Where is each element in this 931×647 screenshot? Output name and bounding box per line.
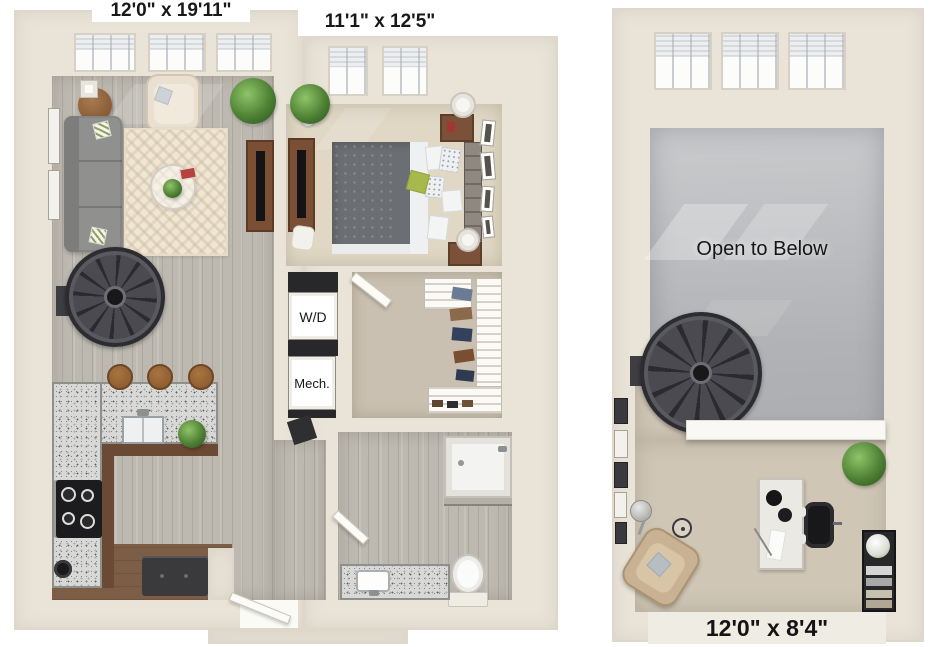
loft-window [654,32,712,90]
kitchen-plant [178,420,206,448]
loft-dimensions-label: 12'0" x 8'4" [648,612,886,644]
spiral-staircase-loft [640,312,762,434]
shoe [432,400,443,407]
closet-wire-shelf [476,278,502,392]
bedside-lamp [450,92,476,118]
wall-art-frame [480,119,497,146]
trash-bin [54,560,72,578]
wall-art-frame [614,430,628,458]
floor-lamp [630,500,652,522]
sofa [64,116,122,252]
wall-art-frame [480,151,496,180]
living-window [216,33,272,72]
shoe [447,401,458,408]
toilet [448,554,488,610]
desk-chair [290,225,315,252]
living-dining-dimensions-label: 12'0" x 19'11" [92,0,250,22]
clothing-item [449,307,472,321]
armchair [146,74,200,132]
bar-stool [147,364,173,390]
vanity-faucet [369,590,379,596]
wall-art-frame [614,398,628,424]
flower-vase [866,534,890,558]
wall-art-frame [48,108,60,164]
loft-window [788,32,846,90]
stove [54,480,102,538]
vanity-sink [356,570,390,592]
appliance-dark-band [288,272,338,292]
bedroom-window [328,46,368,96]
hallway-floor [274,440,326,600]
wall-art-frame [614,462,628,488]
bedroom-plant [290,84,330,124]
shower [444,436,512,498]
shower-glass [444,498,512,506]
living-window [148,33,206,72]
cabinet-front [102,444,114,588]
palm-plant [230,78,276,124]
bedroom-dimensions-label: 11'1" x 12'5" [298,8,462,36]
floor-plan-canvas: 12'0" x 19'11" 11'1" x 12'5" [0,0,931,647]
wall-art-frame [481,215,495,238]
appliance-dark-band [288,410,336,418]
nightstand [440,114,474,142]
living-window [74,33,136,72]
wall-art-frame [615,522,627,544]
spiral-staircase [65,247,165,347]
loft-plant [842,442,886,486]
bar-stool [107,364,133,390]
bedside-lamp [456,228,480,252]
appliance-dark-band [288,340,338,356]
wall-stub [208,548,234,600]
open-to-below-label: Open to Below [662,236,862,262]
wall-art-frame [480,186,495,213]
loft-window [721,32,779,90]
wall-art-frame [48,170,60,220]
entry-bench [142,556,208,596]
mechanical-closet: Mech. [288,356,336,410]
loft-desk [758,478,804,570]
bar-stool [188,364,214,390]
shoe [462,400,473,407]
bedroom-window [382,46,428,96]
clothing-item [455,369,474,382]
loft-railing [686,420,886,440]
coffee-table-plant [163,179,182,198]
table-lamp [80,80,98,98]
clothing-item [451,287,472,302]
kitchen-sink [122,416,164,444]
clothing-item [451,327,472,342]
washer-dryer-closet: W/D [288,292,338,340]
bedroom-desk [288,138,315,232]
office-chair [804,502,834,548]
round-side-table [672,518,692,538]
tv-console [246,140,274,232]
kitchen-faucet [137,409,149,416]
left-unit-bottom-wall-tab [208,630,408,644]
cabinet-front [102,444,218,456]
wall-art-frame [614,492,627,518]
